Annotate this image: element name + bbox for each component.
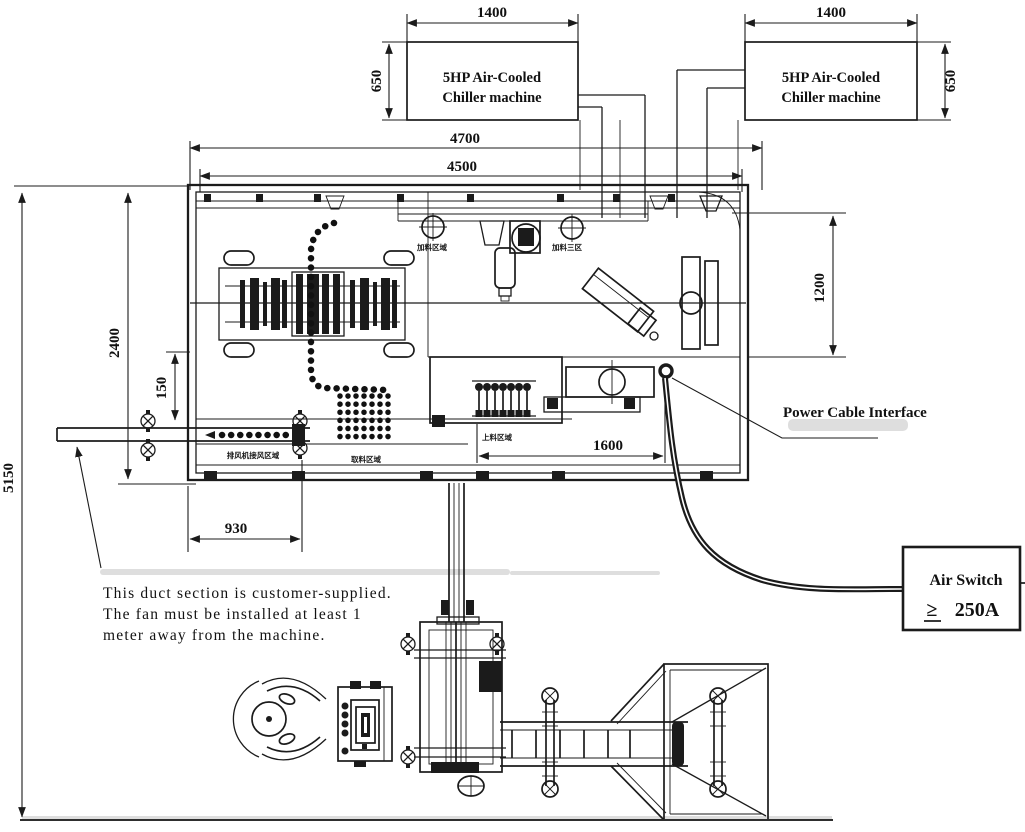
air-switch-box: Air Switch ≥ 250A (903, 547, 1025, 630)
note-line1: This duct section is customer-supplied. (103, 585, 392, 602)
left-chiller-width-dim: 1400 (477, 5, 507, 21)
cable-drag-chain (205, 223, 388, 446)
left-chiller-height-dim: 650 (369, 70, 385, 93)
duct-clamp-bolt-icon (141, 439, 155, 461)
feeder-cluster: 加料区域 加料三区 (416, 213, 586, 301)
area-label-feed-left: 加料区域 (416, 242, 447, 252)
right-chiller-height-dim: 650 (943, 70, 959, 93)
power-cable-interface-label: Power Cable Interface (783, 405, 927, 421)
air-switch-label: Air Switch (929, 572, 1002, 589)
right-chiller-label-line1: 5HP Air-Cooled (782, 70, 880, 86)
area-label-exhaust: 排风机接风区域 (227, 450, 280, 460)
exhaust-duct (57, 410, 310, 568)
dim-1600: 1600 (593, 438, 623, 454)
output-conveyor (500, 664, 768, 820)
area-label-takeout: 取料区域 (351, 454, 381, 464)
takeout-module (544, 360, 654, 412)
dim-930: 930 (225, 521, 248, 537)
power-cable-system: Power Cable Interface Air Switch ≥ 250A (660, 365, 1025, 630)
left-chiller-label-line1: 5HP Air-Cooled (443, 70, 541, 86)
left-chiller-label-line2: Chiller machine (442, 90, 542, 106)
mold-clamp-assembly (219, 251, 414, 357)
hopper (611, 664, 768, 820)
dim-1200: 1200 (812, 273, 828, 303)
right-chiller-label-line2: Chiller machine (781, 90, 881, 106)
dim-4500: 4500 (447, 159, 477, 175)
takeout-tower (401, 483, 506, 796)
air-switch-rating: 250A (955, 599, 1000, 621)
tower-bolt-icon (401, 633, 415, 655)
right-chiller-width-dim: 1400 (816, 5, 846, 21)
duct-note: This duct section is customer-supplied. … (103, 585, 392, 644)
tower-bolt-icon (401, 746, 415, 768)
drawing-svg: 5HP Air-Cooled Chiller machine 1400 650 … (0, 0, 1025, 832)
dim-2400: 2400 (107, 328, 123, 358)
note-line2: The fan must be installed at least 1 (103, 606, 362, 623)
conveyor-leg (710, 688, 726, 797)
area-label-feed-right: 加料三区 (551, 242, 582, 252)
air-switch-gte-symbol: ≥ (927, 599, 938, 621)
note-line3: meter away from the machine. (103, 627, 326, 644)
loading-platform: 上料区域 (430, 357, 562, 442)
machine-layout-drawing: 5HP Air-Cooled Chiller machine 1400 650 … (0, 0, 1025, 832)
operator-chair (233, 678, 326, 760)
dim-150: 150 (154, 377, 170, 400)
pin-row (475, 383, 531, 417)
area-label-loading: 上料区域 (482, 432, 512, 442)
control-pendant (338, 681, 392, 767)
conveyor-leg (542, 688, 558, 797)
dim-5150: 5150 (1, 463, 17, 493)
machine-outline (188, 185, 748, 481)
dim-4700: 4700 (450, 131, 480, 147)
